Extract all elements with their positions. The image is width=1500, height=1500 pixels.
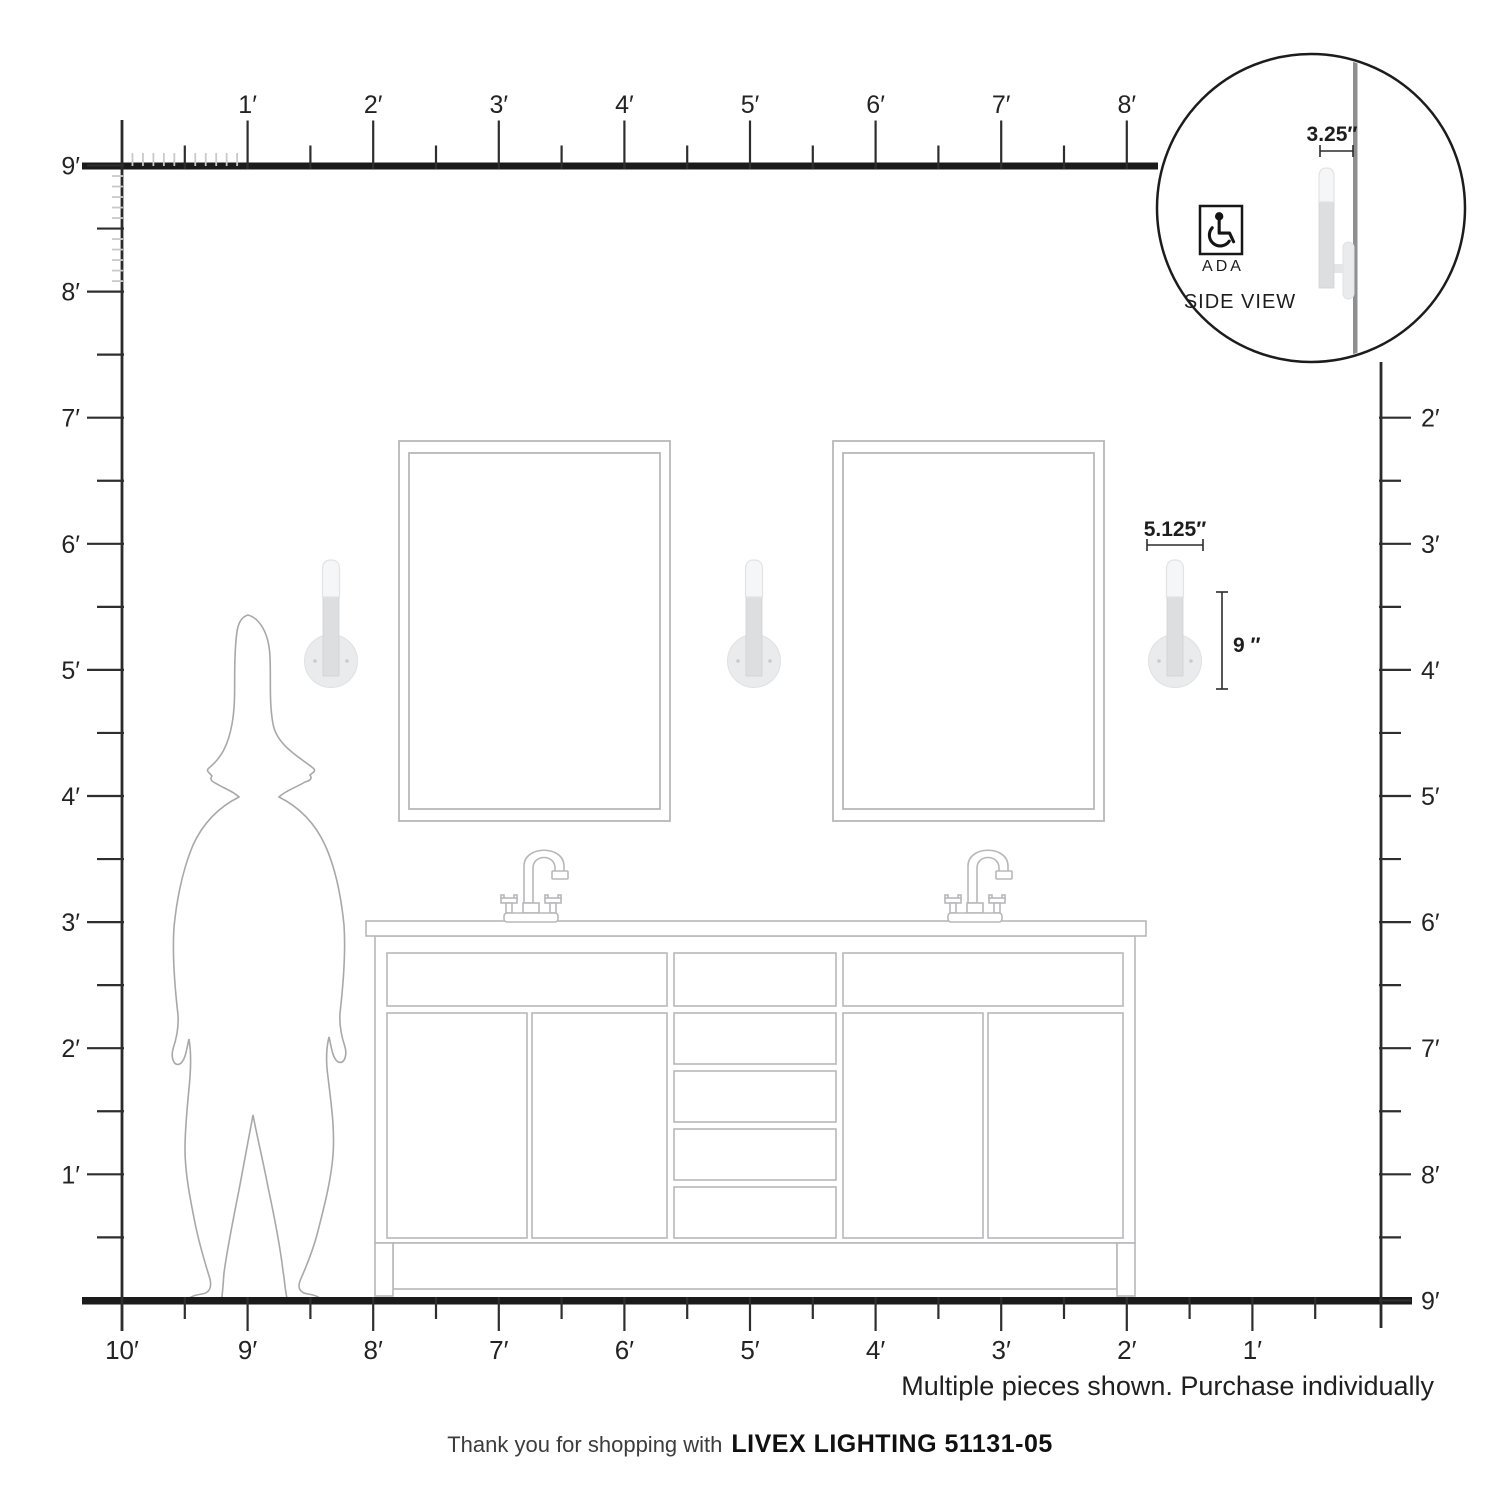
sconce-side-stem	[1319, 199, 1334, 288]
bottom-ruler-label-2′: 2′	[1117, 1335, 1136, 1365]
top-ruler: 1′2′3′4′5′6′7′8′	[132, 91, 1136, 169]
right-mirror	[833, 441, 1104, 821]
footer-thanks: Thank you for shopping withLIVEX LIGHTIN…	[0, 1430, 1500, 1459]
right-ruler-label-6′: 6′	[1421, 909, 1440, 937]
left-faucet	[501, 850, 568, 922]
vanity-door-right-a	[843, 1013, 983, 1238]
right-ruler-label-7′: 7′	[1421, 1035, 1440, 1063]
vanity-leg-right	[1117, 1243, 1135, 1296]
top-ruler-label-4′: 4′	[615, 91, 634, 119]
ceiling-ruler-line	[82, 163, 1158, 170]
bottom-ruler-label-9′: 9′	[238, 1335, 257, 1365]
vanity-countertop	[366, 921, 1146, 936]
bottom-ruler-label-10′: 10′	[105, 1335, 139, 1365]
disclaimer-text: Multiple pieces shown. Purchase individu…	[901, 1371, 1434, 1402]
sconce-side-backplate	[1343, 242, 1354, 299]
vanity-drawer-3	[674, 1129, 836, 1180]
ada-label: ADA	[1202, 258, 1244, 275]
bottom-ruler: 10′9′8′7′6′5′4′3′2′1′	[105, 1297, 1315, 1365]
bottom-ruler-label-7′: 7′	[489, 1335, 508, 1365]
right-ruler-label-5′: 5′	[1421, 783, 1440, 811]
bottom-ruler-label-1′: 1′	[1243, 1335, 1262, 1365]
bottom-ruler-label-3′: 3′	[992, 1335, 1011, 1365]
left-ruler-label-9′: 9′	[61, 153, 80, 181]
bottom-ruler-label-6′: 6′	[615, 1335, 634, 1365]
right-ruler-label-9′: 9′	[1421, 1287, 1440, 1315]
vanity-cabinet	[366, 921, 1146, 1296]
vanity-door-right-b	[988, 1013, 1123, 1238]
sconce-center	[728, 560, 781, 688]
side-view-label: SIDE VIEW	[1184, 291, 1296, 313]
vanity-drawer-top-left	[387, 953, 667, 1006]
vanity-drawer-top-right	[843, 953, 1123, 1006]
top-ruler-label-2′: 2′	[364, 91, 383, 119]
brand-model: LIVEX LIGHTING 51131-05	[731, 1430, 1052, 1458]
vanity-drawer-2	[674, 1071, 836, 1122]
left-ruler-label-1′: 1′	[61, 1161, 80, 1189]
sconce-left	[305, 560, 358, 688]
right-ruler-label-2′: 2′	[1421, 405, 1440, 433]
sconce-right	[1149, 560, 1202, 688]
top-ruler-label-1′: 1′	[238, 91, 257, 119]
sconce-side-arm	[1334, 264, 1343, 273]
height-dimension-label: 9 ″	[1233, 634, 1261, 657]
scene-svg: 1′2′3′4′5′6′7′8′ 9′8′7′6′5′4′3′2′1′ 2′3′…	[0, 0, 1500, 1500]
top-ruler-label-6′: 6′	[866, 91, 885, 119]
side-view-inset: 3.25″ ADA SIDE VIEW	[1157, 54, 1465, 362]
dimension-diagram: 1′2′3′4′5′6′7′8′ 9′8′7′6′5′4′3′2′1′ 2′3′…	[0, 0, 1500, 1500]
left-ruler-label-4′: 4′	[61, 783, 80, 811]
left-ruler: 9′8′7′6′5′4′3′2′1′	[61, 153, 124, 1238]
width-dimension-label: 5.125″	[1144, 518, 1207, 541]
bottom-ruler-label-5′: 5′	[740, 1335, 759, 1365]
scale-figure-silhouette	[172, 615, 346, 1302]
vanity-door-left-a	[387, 1013, 527, 1238]
offset-dimension-label: 3.25″	[1307, 123, 1358, 146]
top-ruler-label-8′: 8′	[1118, 91, 1137, 119]
vanity-base-panel	[393, 1243, 1117, 1289]
vanity-leg-left	[375, 1243, 393, 1296]
vanity-drawer-4	[674, 1187, 836, 1238]
left-ruler-label-5′: 5′	[61, 657, 80, 685]
left-wall-line	[121, 120, 124, 1331]
vanity-drawer-1	[674, 1013, 836, 1064]
left-mirror	[399, 441, 670, 821]
left-ruler-label-7′: 7′	[61, 405, 80, 433]
floor-ruler-line	[82, 1297, 1412, 1305]
bottom-ruler-label-8′: 8′	[364, 1335, 383, 1365]
vanity-door-left-b	[532, 1013, 667, 1238]
top-ruler-label-3′: 3′	[490, 91, 509, 119]
top-ruler-label-7′: 7′	[992, 91, 1011, 119]
sconce-side-glass	[1319, 168, 1334, 202]
top-ruler-label-5′: 5′	[741, 91, 760, 119]
right-ruler-label-8′: 8′	[1421, 1161, 1440, 1189]
left-ruler-label-6′: 6′	[61, 531, 80, 559]
bottom-ruler-label-4′: 4′	[866, 1335, 885, 1365]
right-wall-line	[1380, 362, 1383, 1328]
right-ruler: 2′3′4′5′6′7′8′9′	[1379, 405, 1440, 1316]
left-ruler-label-8′: 8′	[61, 279, 80, 307]
thanks-prefix: Thank you for shopping with	[447, 1432, 722, 1457]
side-wall-line	[1353, 54, 1358, 362]
right-ruler-label-3′: 3′	[1421, 531, 1440, 559]
right-ruler-label-4′: 4′	[1421, 657, 1440, 685]
left-ruler-label-3′: 3′	[61, 909, 80, 937]
vanity-drawer-top-center	[674, 953, 836, 1006]
right-faucet	[945, 850, 1012, 922]
left-ruler-label-2′: 2′	[61, 1035, 80, 1063]
